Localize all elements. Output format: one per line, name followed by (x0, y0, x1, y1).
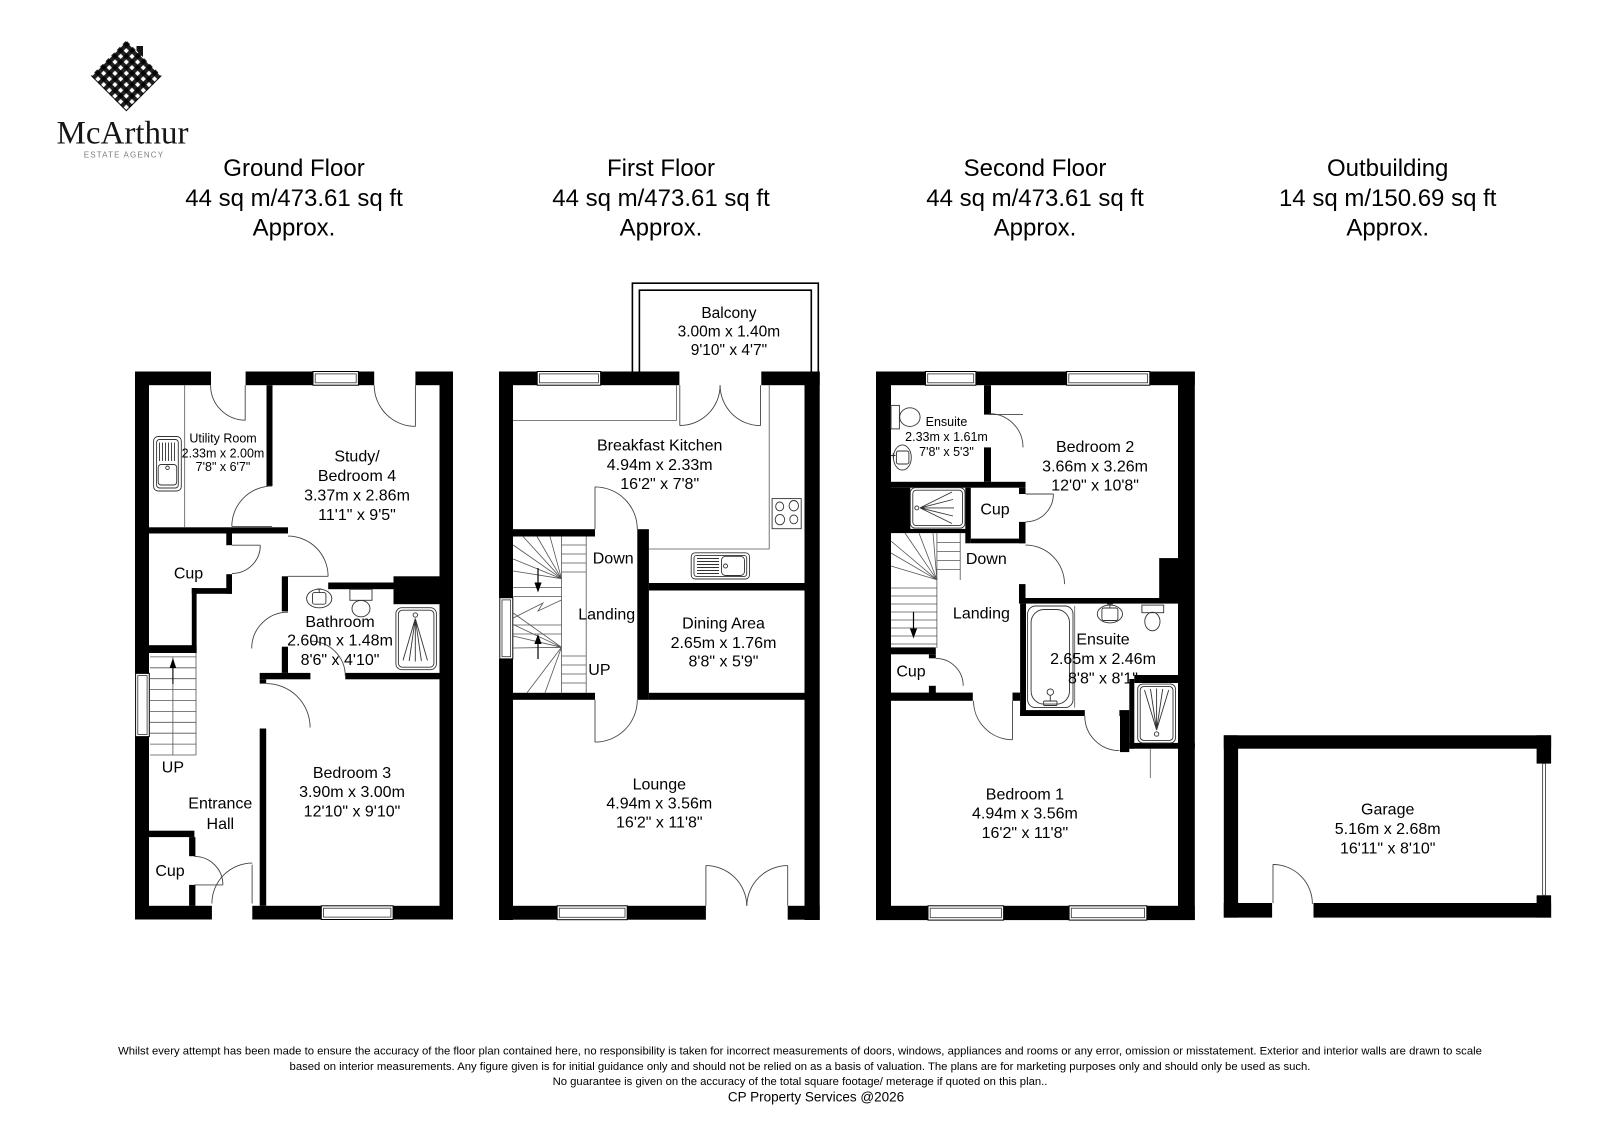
svg-text:Entrance: Entrance (188, 796, 252, 813)
svg-text:Utility Room: Utility Room (189, 432, 256, 446)
svg-text:Down: Down (593, 550, 634, 567)
svg-text:14 sq m/150.69 sq ft: 14 sq m/150.69 sq ft (1279, 185, 1497, 212)
svg-text:First Floor: First Floor (607, 155, 715, 182)
svg-text:Whilst every attempt has been: Whilst every attempt has been made to en… (118, 1046, 1482, 1058)
svg-text:based on interior measurements: based on interior measurements. Any figu… (290, 1061, 1311, 1073)
svg-text:2.65m x 1.76m: 2.65m x 1.76m (671, 635, 777, 652)
svg-text:11'1" x 9'5": 11'1" x 9'5" (318, 507, 396, 524)
svg-text:Hall: Hall (207, 816, 235, 833)
svg-text:44 sq m/473.61 sq ft: 44 sq m/473.61 sq ft (552, 185, 770, 212)
svg-text:Cup: Cup (174, 566, 203, 583)
svg-text:9'10" x 4'7": 9'10" x 4'7" (691, 342, 767, 359)
svg-text:Cup: Cup (896, 664, 925, 681)
svg-text:Bedroom 3: Bedroom 3 (313, 765, 391, 782)
svg-text:8'8" x 8'1": 8'8" x 8'1" (1068, 670, 1138, 687)
svg-text:16'11" x 8'10": 16'11" x 8'10" (1340, 840, 1435, 857)
svg-text:8'6" x 4'10": 8'6" x 4'10" (301, 652, 380, 669)
svg-text:4.94m x 2.33m: 4.94m x 2.33m (607, 457, 713, 474)
svg-text:3.37m x 2.86m: 3.37m x 2.86m (304, 488, 410, 505)
svg-text:3.66m x 3.26m: 3.66m x 3.26m (1042, 459, 1148, 476)
svg-text:Landing: Landing (578, 607, 635, 624)
svg-text:12'0" x 10'8": 12'0" x 10'8" (1051, 478, 1139, 495)
svg-text:UP: UP (588, 662, 610, 679)
svg-text:Lounge: Lounge (633, 777, 686, 794)
svg-text:Ensuite: Ensuite (1076, 632, 1129, 649)
svg-text:Outbuilding: Outbuilding (1327, 155, 1448, 182)
svg-text:Cup: Cup (155, 863, 184, 880)
svg-text:CP Property Services @2026: CP Property Services @2026 (728, 1090, 904, 1105)
svg-text:Down: Down (966, 551, 1007, 568)
svg-text:4.94m x 3.56m: 4.94m x 3.56m (972, 806, 1078, 823)
svg-text:3.00m x 1.40m: 3.00m x 1.40m (678, 324, 781, 341)
svg-text:Ensuite: Ensuite (926, 415, 968, 429)
svg-text:Balcony: Balcony (701, 305, 756, 322)
svg-text:Ground Floor: Ground Floor (223, 155, 364, 182)
svg-text:44 sq m/473.61 sq ft: 44 sq m/473.61 sq ft (185, 185, 403, 212)
svg-text:5.16m x 2.68m: 5.16m x 2.68m (1335, 821, 1441, 838)
svg-text:Approx.: Approx. (253, 214, 336, 241)
svg-text:Approx.: Approx. (994, 214, 1077, 241)
svg-text:44 sq m/473.61 sq ft: 44 sq m/473.61 sq ft (926, 185, 1144, 212)
svg-text:Study/: Study/ (334, 448, 380, 465)
svg-text:UP: UP (162, 760, 184, 777)
svg-text:16'2" x 11'8": 16'2" x 11'8" (982, 825, 1069, 842)
svg-text:ESTATE AGENCY: ESTATE AGENCY (84, 151, 164, 160)
svg-text:7'8" x 5'3": 7'8" x 5'3" (919, 445, 974, 459)
svg-text:2.33m x 2.00m: 2.33m x 2.00m (182, 446, 265, 460)
svg-text:Bedroom 2: Bedroom 2 (1056, 439, 1134, 456)
svg-text:Cup: Cup (980, 502, 1009, 519)
svg-text:Approx.: Approx. (620, 214, 703, 241)
svg-text:12'10" x 9'10": 12'10" x 9'10" (304, 803, 401, 820)
svg-text:8'8" x 5'9": 8'8" x 5'9" (689, 654, 759, 671)
svg-text:Bathroom: Bathroom (305, 614, 374, 631)
svg-text:2.65m x 2.46m: 2.65m x 2.46m (1050, 651, 1156, 668)
svg-text:Landing: Landing (953, 606, 1010, 623)
svg-text:Approx.: Approx. (1346, 214, 1429, 241)
svg-text:3.90m x 3.00m: 3.90m x 3.00m (299, 784, 405, 801)
svg-text:2.33m x 1.61m: 2.33m x 1.61m (905, 430, 988, 444)
svg-text:2.60m x 1.48m: 2.60m x 1.48m (287, 633, 393, 650)
svg-text:16'2" x 7'8": 16'2" x 7'8" (620, 476, 699, 493)
svg-text:Second Floor: Second Floor (964, 155, 1107, 182)
svg-text:Breakfast Kitchen: Breakfast Kitchen (597, 438, 722, 455)
svg-text:16'2" x 11'8": 16'2" x 11'8" (616, 815, 703, 832)
svg-text:No guarantee is given on the a: No guarantee is given on the accuracy of… (553, 1076, 1048, 1088)
svg-text:Garage: Garage (1361, 802, 1414, 819)
svg-text:7'8" x 6'7": 7'8" x 6'7" (196, 460, 251, 474)
svg-text:4.94m x 3.56m: 4.94m x 3.56m (606, 796, 712, 813)
svg-text:Bedroom 1: Bedroom 1 (986, 786, 1064, 803)
svg-text:Dining Area: Dining Area (682, 616, 765, 633)
svg-text:Bedroom 4: Bedroom 4 (318, 468, 396, 485)
svg-text:McArthur: McArthur (57, 116, 189, 152)
